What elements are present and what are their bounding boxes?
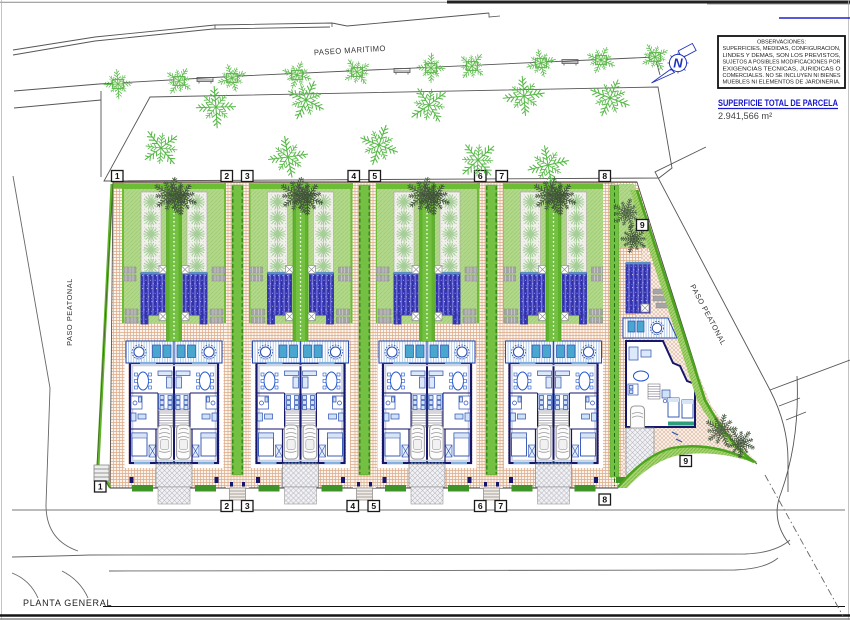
svg-text:7: 7	[499, 171, 504, 181]
svg-text:PASO PEATONAL: PASO PEATONAL	[65, 278, 74, 346]
svg-text:COMERCIALES. NO SE INCLUYEN NI: COMERCIALES. NO SE INCLUYEN NI BIENES	[723, 73, 841, 79]
svg-text:SUJETOS A POSIBLES MODIFICACIO: SUJETOS A POSIBLES MODIFICACIONES POR	[723, 60, 841, 66]
svg-text:SUPERFICIE TOTAL DE PARCELA: SUPERFICIE TOTAL DE PARCELA	[718, 98, 838, 109]
svg-text:4: 4	[350, 501, 355, 511]
svg-text:5: 5	[372, 171, 377, 181]
svg-text:2: 2	[224, 171, 229, 181]
svg-text:PLANTA GENERAL: PLANTA GENERAL	[23, 598, 112, 608]
svg-text:3: 3	[245, 171, 250, 181]
svg-text:1: 1	[115, 171, 120, 181]
svg-text:2.941,566 m²: 2.941,566 m²	[718, 111, 772, 121]
svg-text:N: N	[673, 56, 683, 71]
svg-text:7: 7	[498, 501, 503, 511]
svg-text:3: 3	[245, 501, 250, 511]
svg-text:EXIGENCIAS TECNICAS, JURIDICAS: EXIGENCIAS TECNICAS, JURIDICAS O	[723, 66, 842, 72]
svg-text:8: 8	[602, 495, 607, 505]
svg-text:8: 8	[602, 171, 607, 181]
svg-text:5: 5	[371, 501, 376, 511]
svg-text:1: 1	[98, 482, 103, 492]
svg-text:6: 6	[478, 501, 483, 511]
svg-text:MUEBLES NI ELEMENTOS DE JARDIN: MUEBLES NI ELEMENTOS DE JARDINERIA.	[723, 80, 841, 86]
svg-text:LINDES Y DEMAS, SON LOS PREVIS: LINDES Y DEMAS, SON LOS PREVISTOS,	[723, 53, 841, 59]
svg-text:OBSERVACIONES:: OBSERVACIONES:	[757, 40, 807, 46]
svg-text:4: 4	[351, 171, 356, 181]
svg-text:SUPERFICIES, MEDIDAS, CONFIGUR: SUPERFICIES, MEDIDAS, CONFIGURACION,	[723, 46, 841, 52]
svg-text:9: 9	[683, 456, 688, 466]
svg-text:9: 9	[640, 220, 645, 230]
svg-text:2: 2	[224, 501, 229, 511]
